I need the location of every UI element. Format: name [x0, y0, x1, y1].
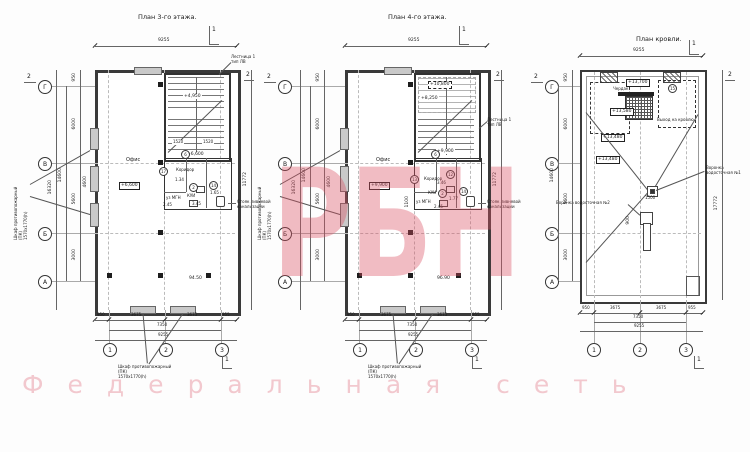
drain-pipe	[643, 223, 651, 251]
dim-label: 3675	[656, 306, 666, 311]
column	[158, 273, 163, 278]
axis-line	[559, 163, 580, 164]
section-marker-label: 1	[692, 41, 696, 48]
watermark-logo: РБН	[272, 150, 519, 300]
dim-label: 950	[97, 313, 105, 318]
louver-window	[90, 166, 99, 192]
dim-label: 7350	[633, 315, 643, 320]
section-marker-line	[694, 356, 695, 368]
section-marker-line	[531, 82, 543, 83]
dim-tick	[235, 317, 240, 322]
dim-label: 950	[317, 73, 322, 82]
axis-bubble-1: 1	[587, 343, 601, 357]
axis-bubble-1: 1	[103, 343, 117, 357]
section-marker-line	[472, 356, 473, 368]
section-marker-label: 2	[246, 72, 250, 79]
fire-cabinet-note-left: Шкаф противопожарный (ПК) 1570х1770(h)	[14, 187, 28, 240]
section-marker-label: 2	[728, 72, 732, 79]
dim-line	[251, 70, 252, 310]
dim-label: 3000	[73, 249, 78, 260]
axis-line	[52, 86, 95, 87]
axis-line	[559, 233, 580, 234]
axis-bubble-3: 3	[465, 343, 479, 357]
dim-line	[56, 70, 57, 310]
louver-window	[90, 203, 99, 227]
section-marker-label: 2	[267, 74, 271, 81]
wall-opening	[384, 67, 412, 75]
roof-corner-box	[686, 276, 700, 296]
dim-label: 7350	[157, 323, 167, 328]
dim-note: 3.45	[192, 202, 201, 207]
dim-tick	[701, 53, 706, 58]
extension-line	[686, 300, 687, 343]
room-label-office: Офис	[126, 158, 140, 164]
section-marker-line	[689, 54, 699, 55]
dim-label: 3675	[610, 306, 620, 311]
dim-label: 950	[73, 73, 78, 82]
axis-line	[52, 281, 95, 282]
section-marker-label: 1	[212, 27, 216, 34]
dim-label: 9255	[634, 324, 644, 329]
level-label-landing: +8,250	[420, 96, 439, 101]
column	[158, 230, 163, 235]
level-box: +6,600	[119, 182, 140, 190]
section-marker-line	[264, 82, 276, 83]
axis-line	[52, 233, 95, 234]
dim-line	[95, 320, 237, 321]
partition-wall	[186, 158, 187, 192]
dim-line	[80, 70, 81, 281]
room-label-wc: уз МГН	[166, 196, 181, 201]
dim-label-top: 9255	[408, 38, 419, 43]
dim-label: 950	[565, 73, 570, 82]
section-marker-line	[222, 356, 223, 368]
roof-exit-label: Выход на кровлю	[656, 118, 695, 123]
section-marker-line	[209, 44, 219, 45]
section-marker-line	[472, 368, 482, 369]
plan3-title: План 3-го этажа.	[138, 14, 197, 21]
column	[206, 273, 211, 278]
dim-label: 955	[222, 313, 230, 318]
column	[158, 82, 163, 87]
dim-line	[345, 340, 487, 341]
stair-note: Лестница 1 тип ЛВ	[231, 55, 255, 65]
dim-line	[580, 56, 703, 57]
extension-line	[359, 310, 360, 343]
watermark-subtitle: Федеральная сеть	[22, 370, 651, 399]
section-marker-line	[689, 40, 690, 54]
dim-label: 6000	[73, 118, 78, 129]
dim-label: 3675	[187, 313, 197, 318]
dim-label: 955	[472, 313, 480, 318]
dim-label: 6000	[317, 118, 322, 129]
stair-note: Лестница 1 тип ЛВ	[487, 118, 511, 128]
level-box: +13,580	[610, 108, 634, 116]
dim-label: 3675	[381, 313, 391, 318]
keynote-ref: 15	[668, 84, 677, 93]
plan4-title: План 4-го этажа.	[388, 14, 447, 21]
axis-bubble-g: Г	[38, 80, 52, 94]
dim-line	[572, 70, 573, 281]
dim-line	[722, 70, 723, 300]
dim-note: 1.34	[175, 178, 184, 183]
dim-label: 3675	[437, 313, 447, 318]
stair-note-line2: тип ЛВ	[231, 60, 255, 65]
dim-label: 7350	[407, 323, 417, 328]
column	[158, 160, 163, 165]
level-box-upper: +10,800	[428, 81, 452, 89]
roof-drain-1-core	[650, 189, 655, 194]
column	[408, 82, 413, 87]
dim-label: 5600	[565, 193, 570, 204]
dim-note: 1500	[645, 196, 655, 201]
stair-note-line2: тип ЛВ	[487, 123, 511, 128]
dim-label: 950	[582, 306, 590, 311]
column	[107, 273, 112, 278]
toilet-fixture	[216, 196, 225, 207]
axis-bubble-a: А	[545, 275, 559, 289]
section-marker-label: 2	[496, 72, 500, 79]
section-marker-line	[459, 44, 469, 45]
section-marker-line	[725, 80, 735, 81]
dim-label: 11772	[244, 172, 249, 186]
dim-label: 5600	[73, 193, 78, 204]
roof-title: План кровли.	[636, 36, 682, 43]
dim-label: 950	[347, 313, 355, 318]
dim-line	[580, 331, 703, 332]
dim-line	[359, 330, 471, 331]
axis-bubble-b: Б	[38, 227, 52, 241]
axis-bubble-v: В	[38, 157, 52, 171]
keynote-ref: 14	[209, 181, 218, 190]
drain-note-line2: водосточная №1	[706, 171, 741, 176]
section-marker-label: 1	[225, 357, 229, 364]
dim-line	[95, 46, 237, 47]
dim-label: 955	[688, 306, 696, 311]
axis-bubble-g: Г	[278, 80, 292, 94]
axis-line	[559, 86, 580, 87]
section-marker-line	[694, 368, 704, 369]
axis-bubble-2: 2	[633, 343, 647, 357]
level-label-landing: +4,950	[183, 94, 202, 99]
section-marker-line	[459, 26, 460, 44]
stair-stringer	[196, 77, 197, 155]
axis-bubble-g: Г	[545, 80, 559, 94]
grid-line	[582, 233, 701, 234]
leader-line	[30, 196, 91, 215]
fire-cabinet-note-left: Шкаф противопожарный (ПК) 1570х1770(h)	[258, 187, 272, 240]
dim-label-top: 9255	[158, 38, 169, 43]
grid-line	[95, 233, 235, 234]
dim-tick	[235, 43, 240, 48]
drain-note-1: Воронка водосточная №1	[706, 166, 741, 176]
dim-label: 3675	[131, 313, 141, 318]
axis-bubble-3: 3	[215, 343, 229, 357]
dim-tick	[701, 310, 706, 315]
axis-line	[559, 281, 580, 282]
extension-line	[109, 310, 110, 343]
axis-bubble-a: А	[38, 275, 52, 289]
dim-label: 16320	[49, 180, 54, 194]
louver-window	[90, 128, 99, 150]
keynote-ref: 6	[181, 150, 190, 159]
stair-dim: 1520	[202, 140, 214, 145]
dim-note: 1.65	[210, 191, 219, 196]
section-marker-label: 2	[534, 74, 538, 81]
dim-line	[95, 340, 237, 341]
dim-label: 6000	[565, 118, 570, 129]
room-label-corridor: Коридор	[176, 168, 194, 173]
level-box: +13,700	[626, 79, 650, 87]
dim-label: 17772	[715, 196, 720, 210]
dim-line	[345, 46, 487, 47]
section-marker-line	[494, 80, 504, 81]
section-marker-label: 1	[475, 357, 479, 364]
dim-label: 14600	[551, 168, 556, 182]
area-value: 94.50	[189, 276, 202, 281]
dim-line	[66, 86, 67, 281]
axis-line	[52, 163, 95, 164]
section-marker-line	[24, 82, 36, 83]
dim-line	[109, 330, 221, 331]
dim-tick	[485, 317, 490, 322]
section-marker-line	[222, 368, 232, 369]
room-label-attic: Чердак	[612, 87, 629, 92]
dim-label: 14600	[59, 168, 64, 182]
dim-line	[558, 86, 559, 281]
blueprint-sheet: План 3-го этажа. 9255 1 +4,950 1520 1520…	[0, 0, 750, 452]
level-box: +13,480	[596, 156, 620, 164]
wall-opening	[134, 67, 162, 75]
section-marker-label: 2	[27, 74, 31, 81]
axis-bubble-1: 1	[353, 343, 367, 357]
dim-label: 4600	[84, 176, 89, 187]
keynote-ref: 2	[189, 183, 198, 192]
partition-wall	[164, 192, 186, 193]
section-marker-line	[244, 80, 254, 81]
keynote-ref: 17	[159, 167, 168, 176]
section-marker-label: 1	[697, 357, 701, 364]
dim-label-top: 9255	[633, 48, 644, 53]
dim-note: 900	[627, 216, 632, 225]
dim-tick	[485, 43, 490, 48]
cabinet-note-line3: 1570х1770(h)	[24, 187, 29, 240]
stair-dim: 1520	[172, 140, 184, 145]
dim-line	[345, 320, 487, 321]
room-label-kui: КУИ	[187, 194, 195, 199]
axis-bubble-b: Б	[545, 227, 559, 241]
section-marker-line	[209, 26, 210, 44]
section-marker-label: 1	[462, 27, 466, 34]
dim-label: 3000	[565, 249, 570, 260]
axis-bubble-3: 3	[679, 343, 693, 357]
leader-line	[228, 203, 236, 204]
partition-wall	[206, 158, 207, 208]
dim-note: 2.45	[163, 203, 172, 208]
